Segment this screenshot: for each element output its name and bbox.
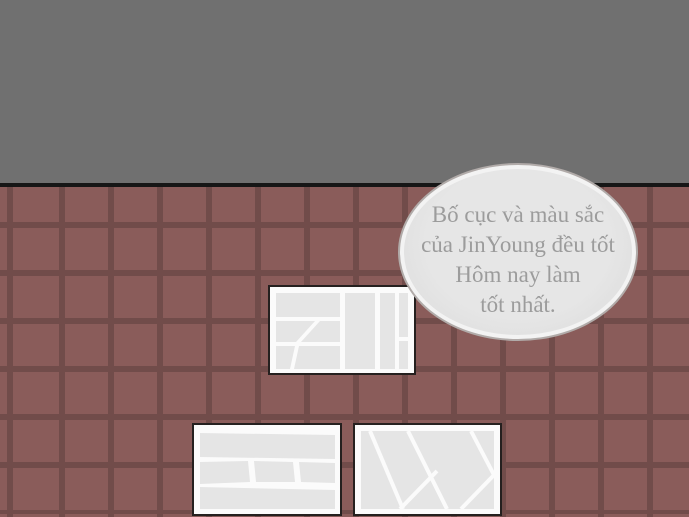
comic-page-bottom-left-layout [192, 423, 342, 516]
speech-line-4: tốt nhất. [480, 290, 555, 320]
speech-bubble-text: Bố cục và màu sắc của JinYoung đều tốt H… [358, 165, 678, 339]
comic-page-bottom-right [353, 423, 502, 516]
comic-panel-scene: Bố cục và màu sắc của JinYoung đều tốt H… [0, 0, 689, 517]
speech-line-1: Bố cục và màu sắc [432, 200, 604, 230]
speech-bubble: Bố cục và màu sắc của JinYoung đều tốt H… [398, 163, 638, 341]
speech-line-2: của JinYoung đều tốt [421, 230, 615, 260]
comic-page-bottom-right-layout [353, 423, 502, 516]
upper-gray-wall [0, 0, 689, 183]
speech-line-3: Hôm nay làm [455, 260, 580, 290]
comic-page-bottom-left [192, 423, 342, 516]
